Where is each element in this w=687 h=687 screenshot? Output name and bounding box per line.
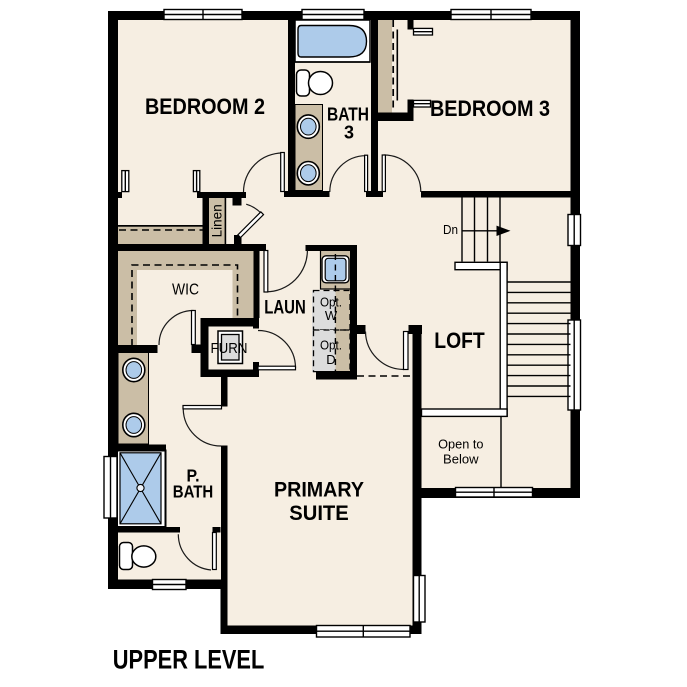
svg-text:BEDROOM 3: BEDROOM 3 (430, 96, 550, 121)
svg-text:Opt.: Opt. (320, 337, 342, 352)
svg-text:BATH: BATH (327, 105, 369, 125)
svg-text:FURN: FURN (211, 340, 248, 357)
svg-text:Dn: Dn (443, 222, 458, 237)
svg-text:BEDROOM 2: BEDROOM 2 (145, 94, 265, 119)
svg-text:3: 3 (344, 123, 354, 143)
svg-text:D: D (326, 352, 335, 367)
svg-text:WIC: WIC (172, 282, 199, 299)
svg-text:LAUN: LAUN (264, 298, 306, 319)
svg-text:Linen: Linen (210, 204, 225, 237)
svg-text:SUITE: SUITE (289, 502, 349, 525)
svg-text:Below: Below (443, 451, 479, 466)
svg-text:W: W (325, 308, 338, 323)
svg-text:Open to: Open to (438, 437, 483, 452)
svg-text:LOFT: LOFT (434, 328, 485, 353)
svg-text:PRIMARY: PRIMARY (274, 478, 364, 501)
svg-text:UPPER LEVEL: UPPER LEVEL (113, 645, 264, 675)
svg-text:BATH: BATH (173, 482, 214, 502)
